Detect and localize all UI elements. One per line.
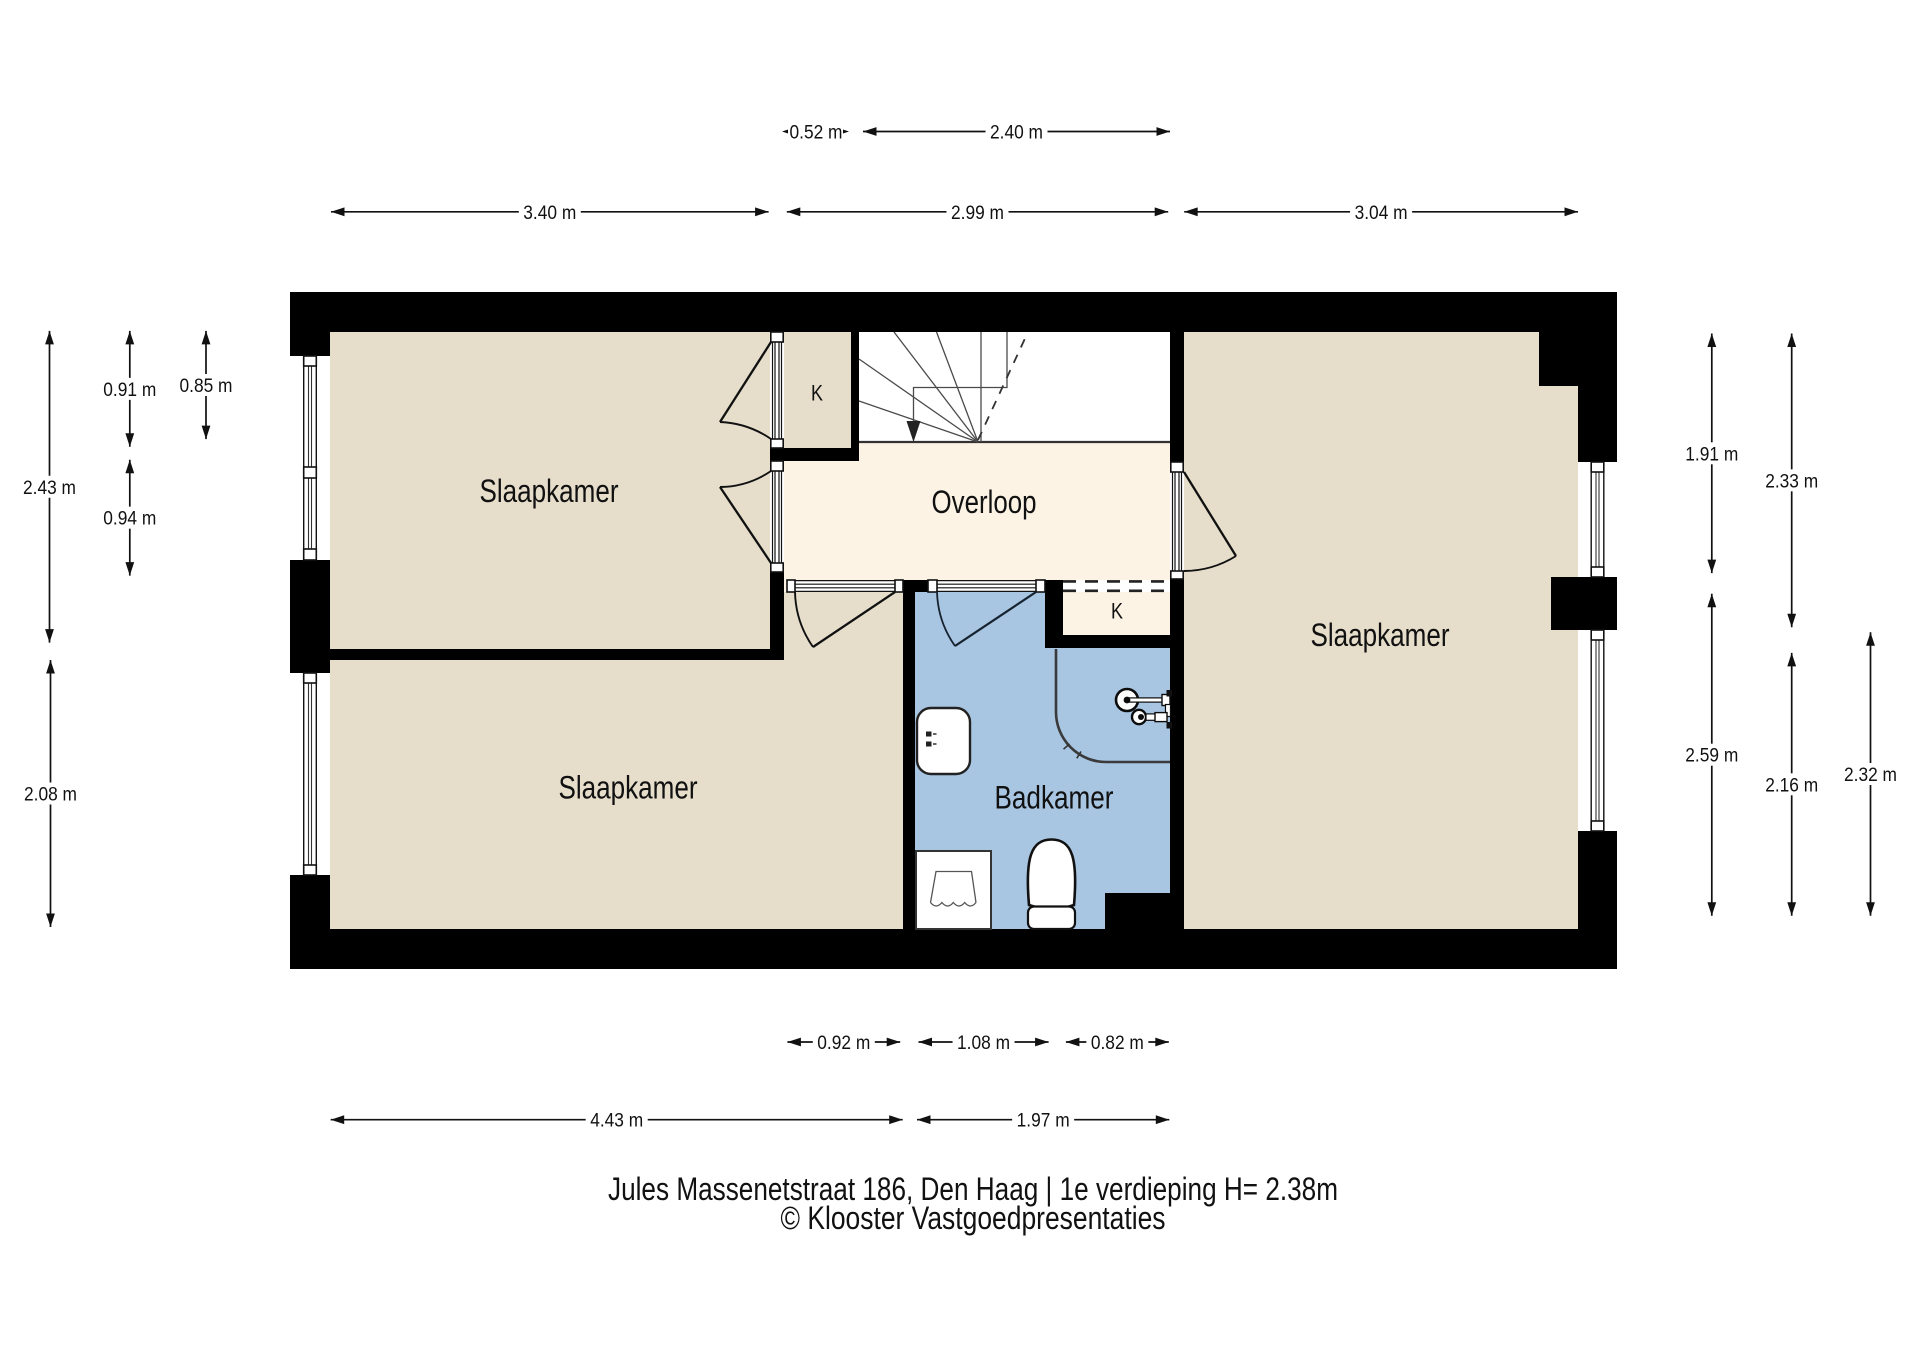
svg-text:1.08 m: 1.08 m (957, 1032, 1010, 1054)
svg-text:0.91 m: 0.91 m (103, 379, 156, 401)
svg-text:0.85 m: 0.85 m (180, 375, 233, 397)
svg-text:3.40 m: 3.40 m (523, 202, 576, 224)
svg-text:Slaapkamer: Slaapkamer (559, 770, 698, 806)
svg-text:© Klooster Vastgoedpresentatie: © Klooster Vastgoedpresentaties (781, 1200, 1166, 1236)
svg-text:K: K (811, 381, 823, 406)
svg-text:4.43 m: 4.43 m (590, 1110, 643, 1132)
svg-text:2.40 m: 2.40 m (990, 122, 1043, 144)
svg-text:0.92 m: 0.92 m (817, 1032, 870, 1054)
svg-text:2.08 m: 2.08 m (24, 784, 77, 806)
svg-text:1.97 m: 1.97 m (1017, 1110, 1070, 1132)
svg-text:3.04 m: 3.04 m (1355, 202, 1408, 224)
svg-text:2.59 m: 2.59 m (1685, 745, 1738, 767)
svg-text:Slaapkamer: Slaapkamer (1311, 617, 1450, 653)
svg-text:Slaapkamer: Slaapkamer (480, 473, 619, 509)
svg-text:2.32 m: 2.32 m (1844, 764, 1897, 786)
svg-text:0.82 m: 0.82 m (1091, 1032, 1144, 1054)
svg-text:2.16 m: 2.16 m (1765, 774, 1818, 796)
svg-text:Badkamer: Badkamer (995, 780, 1114, 816)
svg-text:1.91 m: 1.91 m (1685, 443, 1738, 465)
svg-text:K: K (1111, 599, 1123, 624)
svg-text:0.94 m: 0.94 m (103, 508, 156, 530)
svg-text:0.52 m: 0.52 m (790, 122, 843, 144)
svg-text:2.33 m: 2.33 m (1765, 470, 1818, 492)
svg-text:Overloop: Overloop (932, 484, 1037, 520)
svg-text:2.43 m: 2.43 m (23, 477, 76, 499)
svg-text:2.99 m: 2.99 m (951, 202, 1004, 224)
